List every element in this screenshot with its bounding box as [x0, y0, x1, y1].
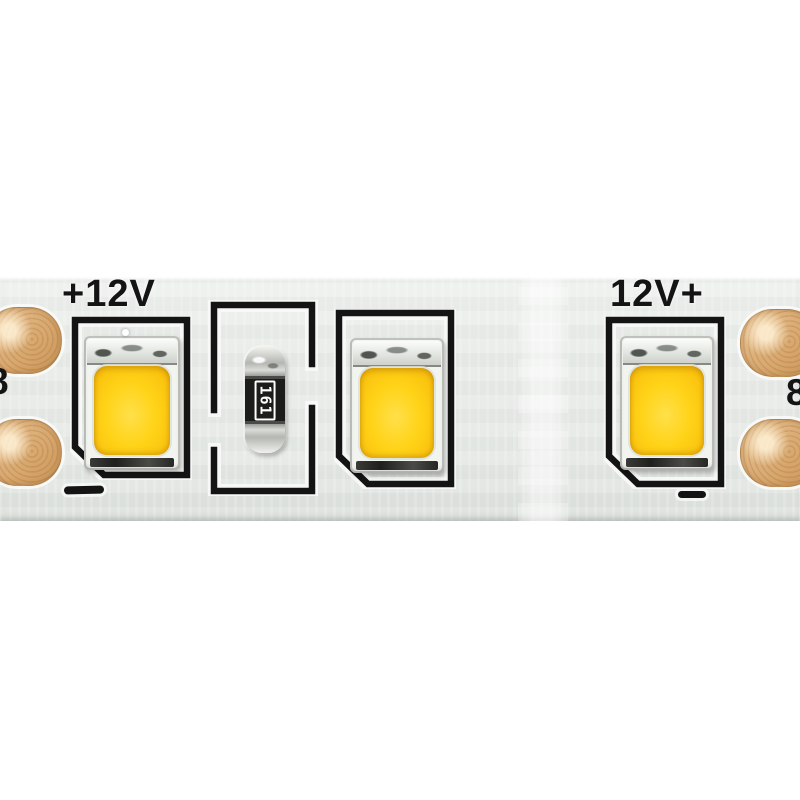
led-package-2 — [350, 338, 444, 473]
solder-pad-top-right — [740, 309, 800, 377]
led-package-3 — [620, 336, 714, 470]
led-bottom-contact — [356, 461, 438, 470]
led-bottom-contact — [626, 458, 708, 467]
minus-mark-right — [678, 491, 706, 498]
led-package-1 — [84, 336, 180, 470]
resistor-body: 161 — [245, 379, 285, 421]
polarity-label-right: 12V+ — [610, 278, 704, 310]
led-bottom-contact — [90, 458, 174, 467]
minus-mark-left — [64, 485, 104, 494]
led-phosphor-window — [630, 366, 704, 455]
solder-pad-bottom-left — [0, 419, 62, 486]
edge-glyph-left: 8 — [0, 365, 9, 399]
led-strip-product-photo: 8 8 +12V 12V+ 161 — [0, 0, 800, 800]
led-top-electrode — [623, 339, 711, 365]
resistor: 161 — [245, 347, 285, 453]
led-top-electrode — [353, 341, 441, 367]
reflection-dot — [122, 329, 129, 336]
edge-glyph-right: 8 — [786, 376, 800, 410]
cut-seam — [518, 277, 568, 521]
resistor-cap-top — [245, 347, 285, 379]
resistor-code: 161 — [255, 380, 276, 420]
solder-pad-top-left — [0, 307, 62, 374]
led-phosphor-window — [360, 368, 434, 458]
led-top-electrode — [87, 339, 177, 365]
solder-pad-bottom-right — [740, 419, 800, 487]
polarity-label-left: +12V — [62, 278, 156, 310]
led-phosphor-window — [94, 366, 170, 455]
resistor-cap-bottom — [245, 421, 285, 453]
pcb-strip: 8 8 +12V 12V+ 161 — [0, 277, 800, 521]
